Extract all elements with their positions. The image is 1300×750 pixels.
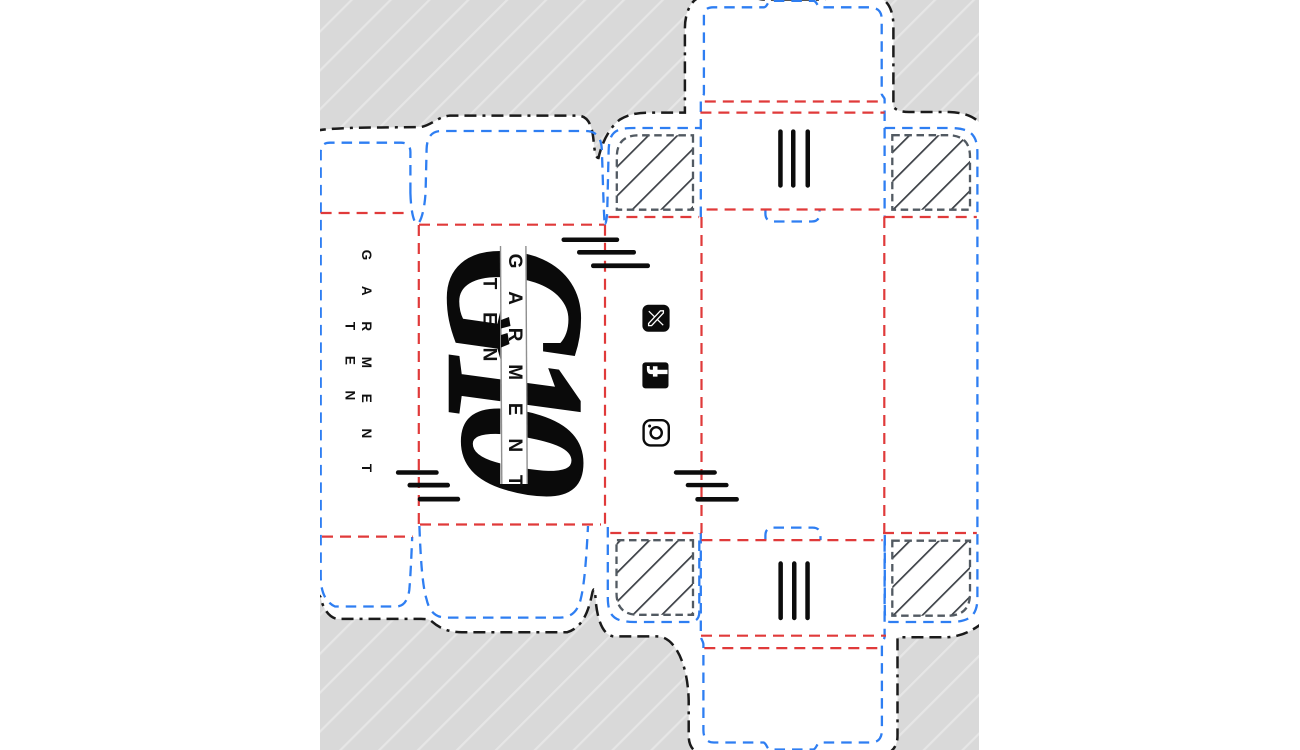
svg-text:TEN: TEN: [343, 322, 358, 426]
svg-text:GARMENT: GARMENT: [359, 250, 374, 498]
svg-text:GARMENT: GARMENT: [504, 254, 525, 510]
